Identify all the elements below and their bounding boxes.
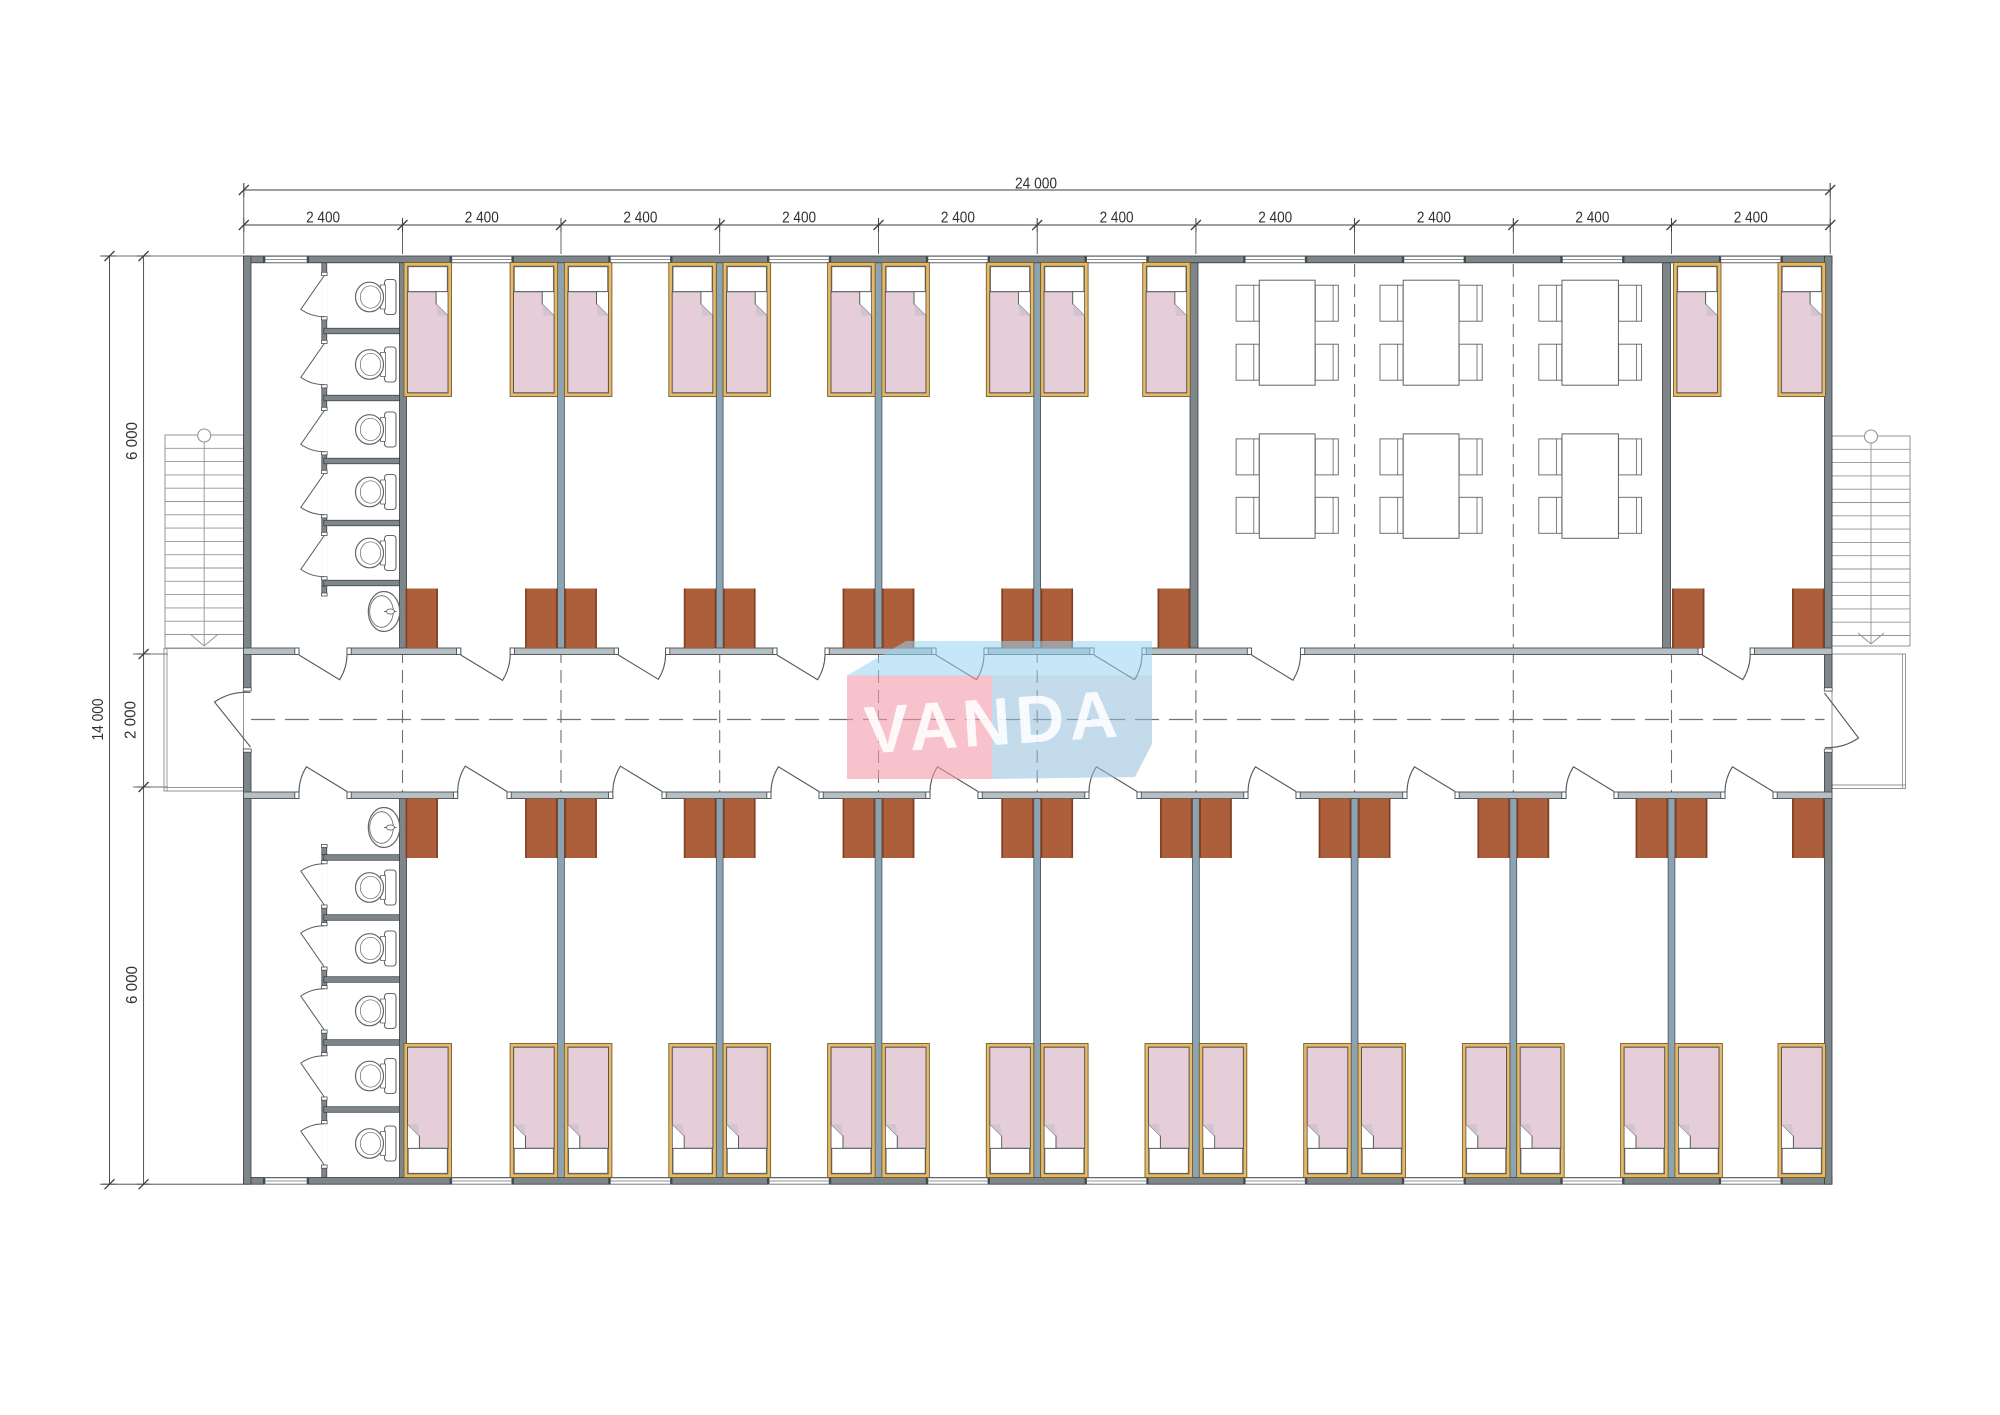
svg-text:6 000: 6 000 — [124, 422, 141, 460]
svg-text:14 000: 14 000 — [90, 698, 107, 740]
svg-text:2 400: 2 400 — [1417, 209, 1451, 226]
svg-text:2 400: 2 400 — [1258, 209, 1292, 226]
svg-text:2 400: 2 400 — [623, 209, 657, 226]
svg-text:6 000: 6 000 — [124, 966, 141, 1004]
svg-text:2 400: 2 400 — [465, 209, 499, 226]
svg-text:2 000: 2 000 — [123, 701, 140, 739]
svg-text:2 400: 2 400 — [941, 209, 975, 226]
svg-text:2 400: 2 400 — [1734, 209, 1768, 226]
svg-text:24 000: 24 000 — [1015, 176, 1057, 193]
svg-text:2 400: 2 400 — [1100, 209, 1134, 226]
svg-text:2 400: 2 400 — [1575, 209, 1609, 226]
svg-text:2 400: 2 400 — [306, 209, 340, 226]
svg-text:2 400: 2 400 — [782, 209, 816, 226]
